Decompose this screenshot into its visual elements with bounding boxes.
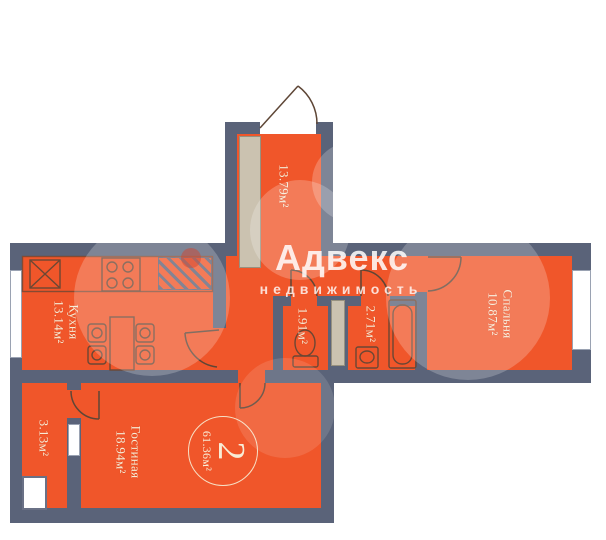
- watermark-circle: [386, 216, 550, 380]
- area-label: 13.14м²: [51, 300, 66, 343]
- kitchen-sink-symbol: [30, 260, 60, 288]
- area-label: 2.71м²: [363, 306, 378, 343]
- washbasin-symbol: [356, 347, 378, 368]
- room-label-storage: 3.13м²: [36, 420, 51, 457]
- room-label-wc: 1.91м²: [295, 308, 310, 345]
- total-area: 61.36м²: [199, 431, 214, 471]
- entrance-door-swing: [260, 86, 317, 128]
- room-label-bathroom: 2.71м²: [363, 306, 378, 343]
- watermark-circle: [312, 142, 392, 222]
- room-label-living: Гостиная 18.94м²: [113, 426, 144, 479]
- area-label: 18.94м²: [113, 426, 128, 479]
- watermark-dot: [181, 248, 201, 268]
- watermark-circle: [74, 220, 230, 376]
- area-label: 3.13м²: [36, 420, 51, 457]
- watermark-brand: Адвекс: [275, 237, 409, 279]
- floor-plan: 13.79м² Кухня 13.14м² 1.91м² 2.71м² Спал…: [0, 0, 606, 540]
- watermark-subtitle: недвижимость: [260, 281, 423, 297]
- watermark-circle: [235, 358, 335, 458]
- area-label: 1.91м²: [295, 308, 310, 345]
- room-name: Гостиная: [128, 426, 143, 479]
- storage-door-swing: [71, 391, 99, 419]
- rooms-count: 2: [214, 442, 246, 461]
